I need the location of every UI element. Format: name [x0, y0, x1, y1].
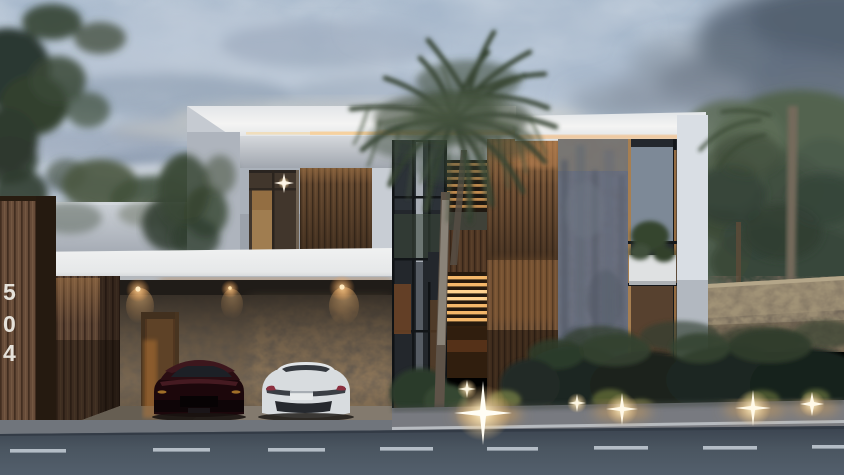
svg-text:5: 5	[3, 279, 16, 305]
svg-text:4: 4	[3, 340, 16, 366]
svg-text:0: 0	[3, 311, 16, 337]
